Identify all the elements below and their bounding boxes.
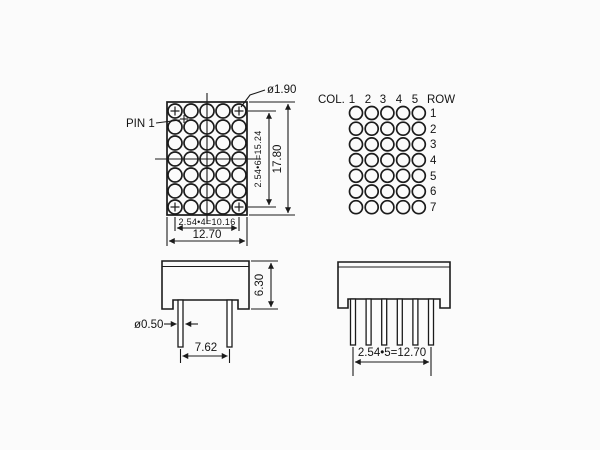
dim-pin-row: 2.54•5=12.70 <box>358 347 426 359</box>
dot-diameter-label: ø1.90 <box>267 84 296 96</box>
dim-pin-spacing: 7.62 <box>195 342 217 354</box>
col-number-3: 3 <box>380 94 386 106</box>
col-number-5: 5 <box>412 94 418 106</box>
row-number-2: 2 <box>430 124 436 136</box>
dim-side-body-height: 6.30 <box>254 274 266 296</box>
row-number-7: 7 <box>430 202 436 214</box>
row-number-1: 1 <box>430 108 436 120</box>
col-number-1: 1 <box>349 94 355 106</box>
row-number-5: 5 <box>430 171 436 183</box>
side-view-body-outline <box>162 261 249 309</box>
side-view: 6.30 ø0.50 7.62 <box>134 261 278 363</box>
bottom-view-pins <box>351 299 434 345</box>
dim-body-width: 12.70 <box>193 229 222 241</box>
pin1-leader-line <box>156 120 180 123</box>
dim-pin-diameter: ø0.50 <box>134 319 163 331</box>
pin-map: COL. 1 2 3 4 5 ROW 1 2 3 4 5 6 7 <box>318 94 455 214</box>
dot-diameter-leader-line <box>241 90 265 107</box>
pin1-label: PIN 1 <box>126 118 155 130</box>
front-view: PIN 1 ø1.90 2.54•6=15.24 17.80 2.54•4=10… <box>126 84 296 246</box>
col-number-4: 4 <box>396 94 403 106</box>
row-header-label: ROW <box>427 94 455 106</box>
bottom-view: 2.54•5=12.70 <box>338 262 450 376</box>
dim-dot-pitch-width: 2.54•4=10.16 <box>178 217 235 227</box>
row-number-3: 3 <box>430 139 436 151</box>
pin-map-dot-grid <box>350 107 426 214</box>
mechanical-drawing: PIN 1 ø1.90 2.54•6=15.24 17.80 2.54•4=10… <box>0 0 600 450</box>
row-number-6: 6 <box>430 186 436 198</box>
col-number-2: 2 <box>365 94 371 106</box>
row-number-4: 4 <box>430 155 437 167</box>
dim-dot-pitch-height: 2.54•6=15.24 <box>253 130 263 187</box>
dim-body-height: 17.80 <box>272 145 284 174</box>
datasheet-drawing-page: PIN 1 ø1.90 2.54•6=15.24 17.80 2.54•4=10… <box>0 0 600 450</box>
col-header-label: COL. <box>318 94 345 106</box>
